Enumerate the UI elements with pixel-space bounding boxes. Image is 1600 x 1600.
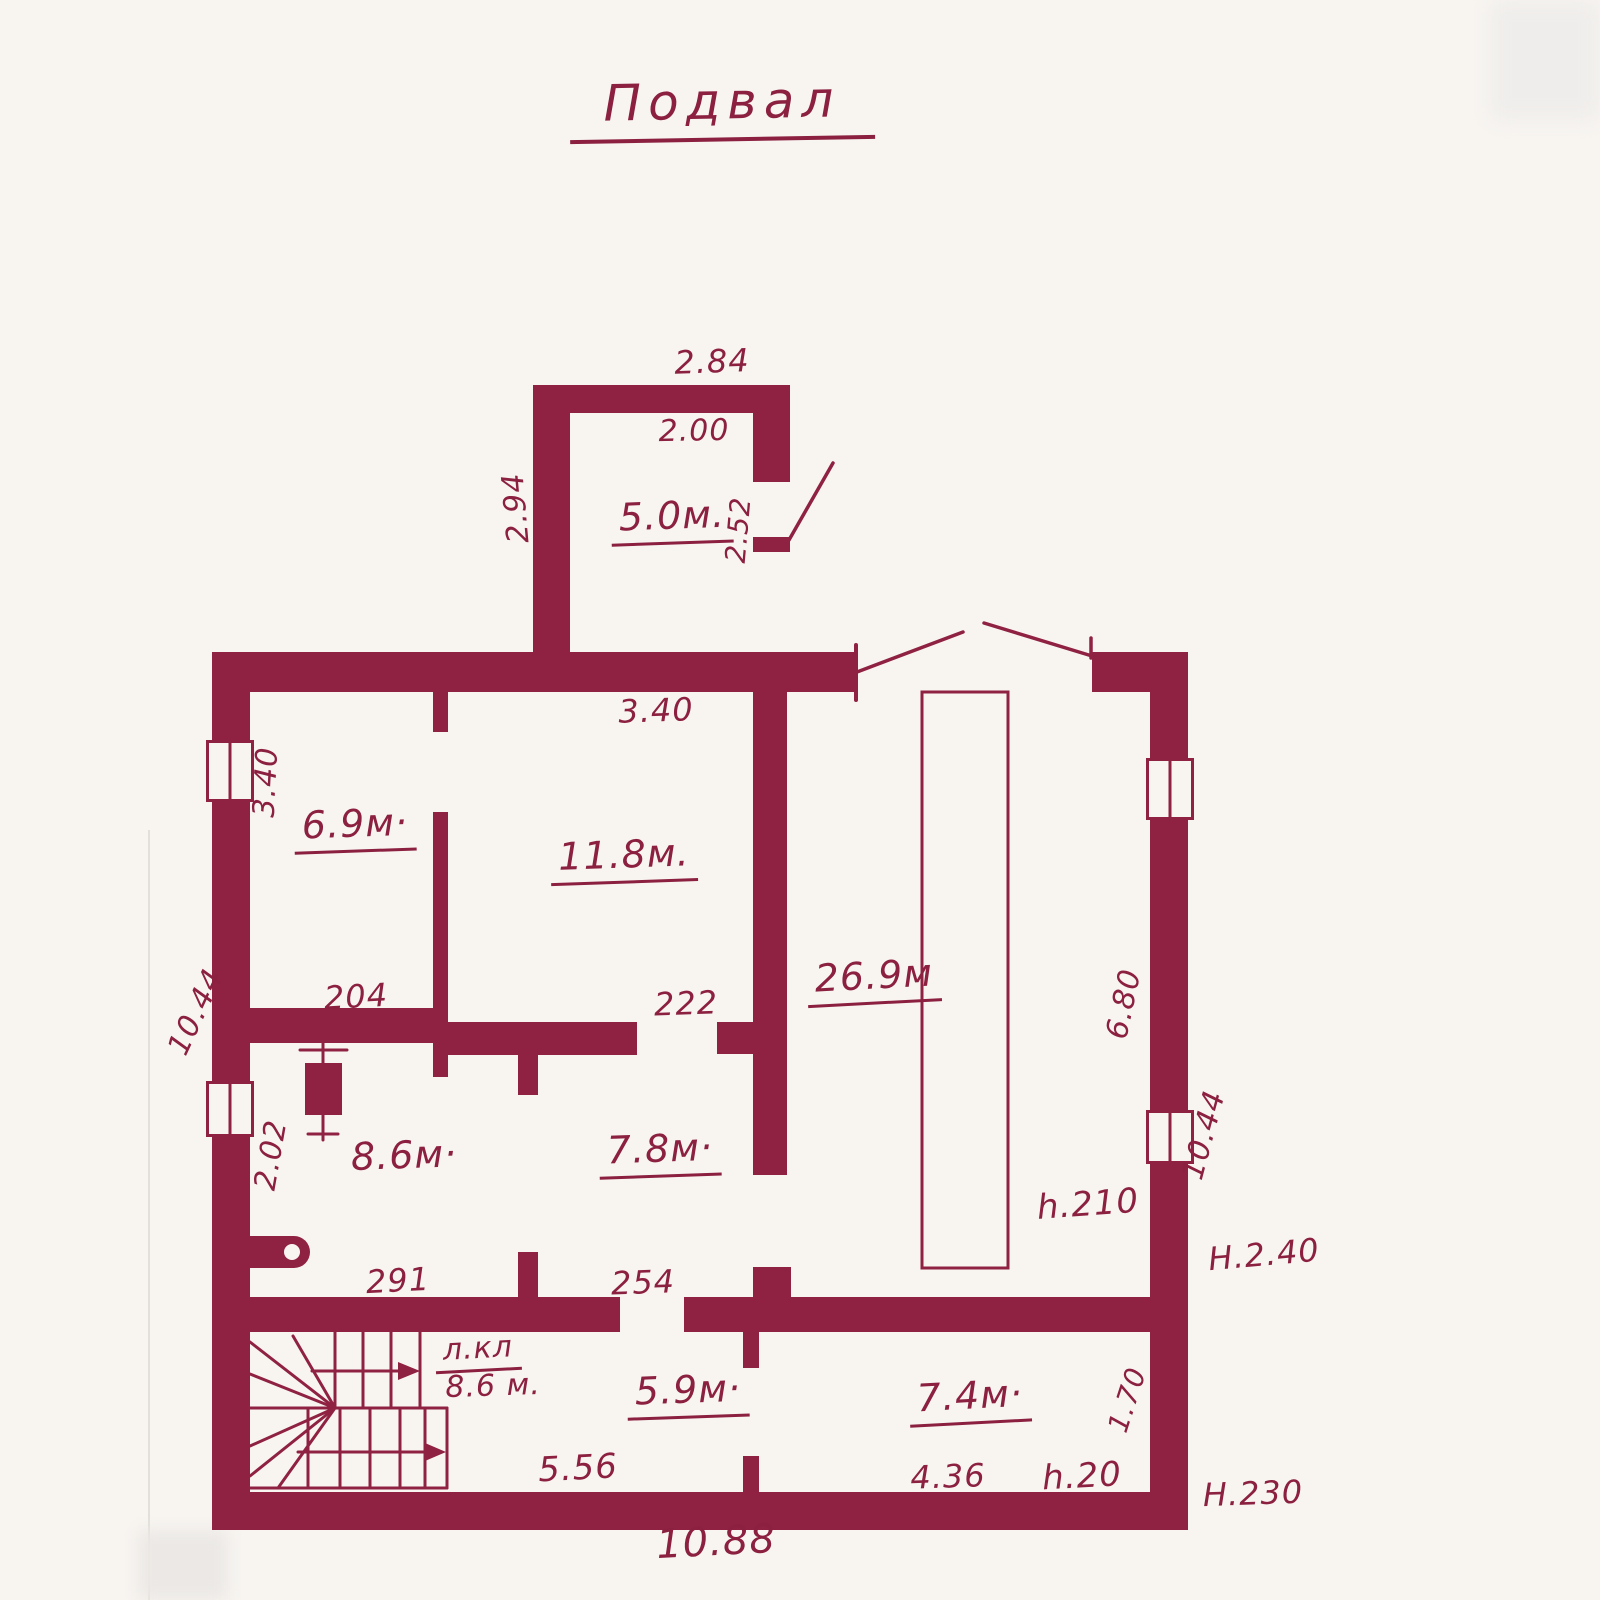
dim-436: 4.36 bbox=[910, 1458, 986, 1496]
room-area-8-6: 8.6м· bbox=[350, 1133, 458, 1178]
room-area-annex: 5.0м. bbox=[610, 493, 734, 546]
height-bottom-outer: H.230 bbox=[1202, 1475, 1303, 1514]
plan-line-details bbox=[0, 0, 1600, 1600]
dim-204: 204 bbox=[323, 978, 389, 1016]
room-area-5-9: 5.9м· bbox=[626, 1367, 750, 1420]
entry-door-swing bbox=[789, 463, 833, 540]
height-garage: h.210 bbox=[1036, 1183, 1141, 1227]
dim-222: 222 bbox=[653, 985, 718, 1022]
dim-annex-width-outer: 2.84 bbox=[674, 343, 750, 381]
dim-1088: 10.88 bbox=[655, 1517, 777, 1567]
dim-291: 291 bbox=[365, 1262, 431, 1300]
dim-340-top: 3.40 bbox=[618, 692, 694, 730]
dim-annex-width-inner: 2.00 bbox=[658, 414, 729, 448]
height-corner-room: h.20 bbox=[1041, 1456, 1122, 1498]
floor-plan-scan: Подвал 2.84 2.00 2.94 2.52 5.0м. 3.40 3.… bbox=[0, 0, 1600, 1600]
room-area-11-8: 11.8м. bbox=[550, 832, 699, 886]
dim-340-left: 3.40 bbox=[248, 746, 285, 818]
door-leaf-detail bbox=[250, 1236, 310, 1268]
boiler-symbol bbox=[300, 1030, 347, 1140]
dim-annex-height-left: 2.94 bbox=[496, 471, 535, 544]
garage-gate-leaves bbox=[856, 623, 1092, 700]
room-area-6-9: 6.9м· bbox=[293, 801, 417, 854]
stairs bbox=[250, 1332, 447, 1488]
plan-title: Подвал bbox=[569, 72, 875, 144]
room-area-26-9: 26.9м bbox=[806, 952, 943, 1008]
dim-254: 254 bbox=[610, 1264, 675, 1301]
dim-556: 5.56 bbox=[537, 1448, 619, 1490]
room-area-7-8: 7.8м· bbox=[598, 1126, 722, 1179]
room-area-7-4: 7.4м· bbox=[908, 1372, 1033, 1427]
room-area-stairwell: 8.6 м. bbox=[445, 1368, 542, 1404]
